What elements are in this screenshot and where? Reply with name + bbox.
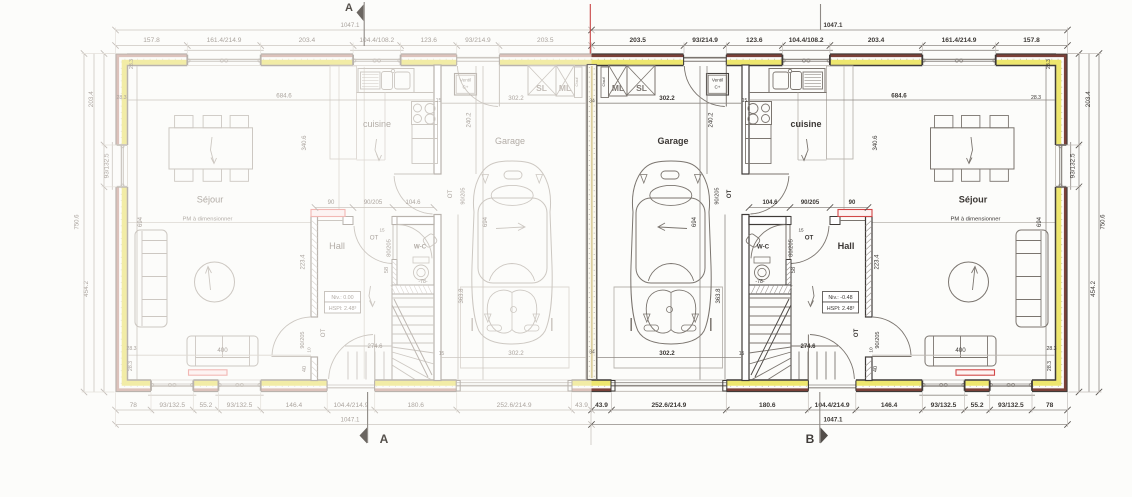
svg-text:cuisine: cuisine [790,119,821,129]
svg-text:OT: OT [370,235,379,242]
svg-text:Niv.: -0.48: Niv.: -0.48 [828,295,852,301]
svg-text:55.2: 55.2 [199,402,212,409]
svg-text:93/132.5: 93/132.5 [227,402,253,409]
svg-text:146.4: 146.4 [286,402,303,409]
svg-text:161.4/214.9: 161.4/214.9 [942,37,977,44]
svg-text:-78-: -78- [418,279,427,285]
svg-text:203.5: 203.5 [537,37,554,44]
svg-text:363.8: 363.8 [716,288,722,304]
svg-text:90: 90 [328,200,335,206]
svg-text:104.6: 104.6 [405,200,421,206]
svg-text:454.2: 454.2 [1090,280,1097,296]
svg-text:93/132.5: 93/132.5 [931,402,957,409]
svg-text:-78-: -78- [755,279,764,285]
svg-text:684.6: 684.6 [891,93,907,100]
svg-text:80/205: 80/205 [789,239,795,257]
svg-text:400: 400 [217,347,228,354]
svg-text:15: 15 [742,98,748,104]
svg-text:157.8: 157.8 [1023,37,1040,44]
svg-text:28.3: 28.3 [116,95,126,101]
svg-text:A: A [345,2,353,14]
svg-text:Séjour: Séjour [197,195,224,205]
svg-text:146.4: 146.4 [881,402,898,409]
svg-text:28.3: 28.3 [1031,95,1041,101]
svg-text:40: 40 [302,366,308,372]
svg-text:1047.1: 1047.1 [824,417,843,424]
svg-text:OT: OT [320,328,327,337]
svg-text:ML: ML [559,83,571,93]
svg-text:302.2: 302.2 [659,350,675,357]
svg-text:123.6: 123.6 [746,37,763,44]
svg-text:1047.1: 1047.1 [341,22,360,29]
svg-text:15: 15 [436,98,442,104]
svg-text:694: 694 [138,216,144,227]
svg-text:90/205: 90/205 [364,200,383,206]
svg-text:90/205: 90/205 [715,187,721,204]
svg-text:34: 34 [589,350,595,356]
svg-text:694: 694 [692,216,698,227]
svg-text:684.6: 684.6 [276,93,292,100]
svg-text:Chauf: Chauf [602,77,606,86]
svg-text:43.9: 43.9 [595,402,608,409]
svg-text:PM à dimensionner: PM à dimensionner [183,217,233,223]
svg-text:104.4/108.2: 104.4/108.2 [789,37,824,44]
svg-text:157.8: 157.8 [143,37,160,44]
svg-text:HSPl: 2.48³: HSPl: 2.48³ [827,306,855,312]
svg-text:274.6: 274.6 [367,344,383,350]
svg-text:203.4: 203.4 [299,37,316,44]
svg-text:HSPl: 2.48³: HSPl: 2.48³ [329,306,357,312]
svg-text:PM à dimensionner: PM à dimensionner [951,217,1001,223]
svg-text:10: 10 [869,347,875,353]
svg-text:SL: SL [536,83,547,93]
svg-text:123.6: 123.6 [420,37,437,44]
svg-text:Séjour: Séjour [959,195,988,205]
svg-text:90/205: 90/205 [461,187,467,204]
svg-text:OT: OT [805,235,814,242]
svg-text:750.6: 750.6 [1101,214,1107,230]
svg-text:28.3: 28.3 [1046,346,1056,352]
svg-text:203.4: 203.4 [1085,91,1092,107]
svg-text:340.6: 340.6 [302,135,308,151]
svg-text:15: 15 [798,228,804,233]
svg-text:93/132.5: 93/132.5 [1070,153,1077,178]
svg-text:104.4/214.9: 104.4/214.9 [333,402,368,409]
svg-text:694: 694 [483,216,489,227]
svg-text:15: 15 [739,351,745,357]
svg-text:Hall: Hall [838,241,855,251]
svg-text:80/205: 80/205 [387,239,393,257]
svg-text:93/214.9: 93/214.9 [692,37,718,44]
svg-text:28.3: 28.3 [126,346,136,352]
svg-text:223.4: 223.4 [301,254,307,270]
svg-text:93/132.5: 93/132.5 [998,402,1024,409]
svg-text:302.2: 302.2 [508,95,524,102]
svg-text:400: 400 [955,347,966,354]
svg-text:340.6: 340.6 [873,135,879,151]
svg-text:90/205: 90/205 [300,331,306,348]
svg-text:40: 40 [873,366,879,372]
svg-text:203.4: 203.4 [868,37,885,44]
svg-text:90/205: 90/205 [875,331,881,348]
svg-text:240.2: 240.2 [709,112,715,128]
svg-text:90: 90 [849,200,856,206]
svg-text:34: 34 [589,99,595,105]
svg-text:58: 58 [384,267,390,273]
svg-text:OT: OT [447,189,454,198]
svg-text:240.2: 240.2 [467,112,473,128]
svg-text:104.6: 104.6 [762,200,778,206]
svg-text:90/205: 90/205 [801,200,820,206]
svg-text:93/132.5: 93/132.5 [159,402,185,409]
svg-text:78: 78 [1046,402,1054,409]
svg-text:302.2: 302.2 [508,350,524,357]
svg-text:SL: SL [636,83,647,93]
svg-text:Hall: Hall [329,241,345,251]
svg-text:28.3: 28.3 [1046,59,1052,69]
svg-text:274.6: 274.6 [800,344,816,350]
svg-text:Ventil: Ventil [460,78,471,83]
svg-text:cuisine: cuisine [363,119,391,129]
svg-text:180.6: 180.6 [407,402,424,409]
svg-text:93/214.9: 93/214.9 [465,37,491,44]
svg-text:OT: OT [726,189,733,198]
svg-text:252.6/214.9: 252.6/214.9 [651,402,686,409]
svg-text:302.2: 302.2 [659,95,675,102]
svg-text:180.6: 180.6 [759,402,776,409]
svg-text:Chauf: Chauf [575,77,579,86]
svg-text:1047.1: 1047.1 [824,22,843,29]
svg-text:10: 10 [307,347,313,353]
svg-text:203.4: 203.4 [88,91,95,107]
svg-text:28.3: 28.3 [129,59,135,69]
svg-text:ML: ML [612,83,624,93]
svg-text:C+: C+ [714,85,720,90]
svg-text:Ventil: Ventil [712,78,723,83]
svg-text:Garage: Garage [657,136,688,146]
svg-text:W-C: W-C [757,244,770,251]
svg-text:363.8: 363.8 [459,288,465,304]
svg-text:1047.1: 1047.1 [341,417,360,424]
svg-text:93/132.5: 93/132.5 [104,153,111,178]
svg-text:28.3: 28.3 [128,361,134,371]
svg-text:694: 694 [1037,216,1043,227]
svg-text:78: 78 [130,402,138,409]
svg-text:15: 15 [439,351,445,357]
svg-text:OT: OT [853,328,860,337]
svg-text:43.9: 43.9 [575,402,588,409]
svg-text:58: 58 [791,267,797,273]
svg-text:W-C: W-C [414,244,427,251]
svg-text:Niv.: 0.00: Niv.: 0.00 [331,295,353,301]
svg-text:15: 15 [379,228,385,233]
svg-text:C+: C+ [462,85,468,90]
svg-text:252.6/214.9: 252.6/214.9 [497,402,532,409]
svg-text:161.4/214.9: 161.4/214.9 [207,37,242,44]
svg-text:223.4: 223.4 [875,254,881,270]
svg-text:750.6: 750.6 [75,214,81,230]
svg-text:55.2: 55.2 [971,402,984,409]
svg-text:A: A [380,432,389,446]
svg-text:Garage: Garage [495,136,525,146]
svg-text:203.5: 203.5 [629,37,646,44]
svg-text:28.3: 28.3 [1047,361,1053,371]
svg-text:B: B [806,432,815,446]
